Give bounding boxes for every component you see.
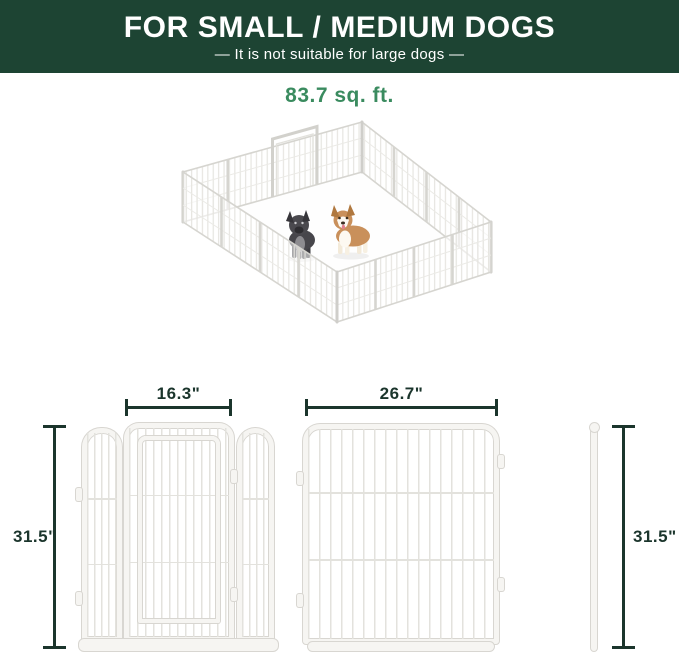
playpen-illustration [0,112,679,344]
left-height-label: 31.5" [13,527,57,547]
header-banner: FOR SMALL / MEDIUM DOGS — It is not suit… [0,0,679,73]
hinge-tab [297,594,303,607]
playpen-isometric-illustration [0,112,679,344]
regular-panel-base-bar [308,642,494,651]
narrow-panel-right [237,428,274,642]
panel-width-label: 26.7" [305,384,498,404]
hinge-tab [498,455,504,468]
hinge-tab [231,470,237,483]
door-width-dimension-line [125,406,232,409]
panel-width-dimension-line [305,406,498,409]
door-frame [138,436,220,623]
header-subtitle: — It is not suitable for large dogs — [215,46,465,63]
hinge-tab [76,592,82,605]
door-panel [124,423,234,642]
door-section-base-bar [79,639,278,651]
page-title: FOR SMALL / MEDIUM DOGS [124,11,556,44]
stake-height-label: 31.5" [633,527,677,547]
area-size-label: 83.7 sq. ft. [0,84,679,108]
hinge-tab [498,578,504,591]
narrow-panel-left [82,428,122,642]
regular-panel [303,424,499,644]
ground-stake [591,429,597,651]
door-width-label: 16.3" [125,384,232,404]
product-infographic: FOR SMALL / MEDIUM DOGS — It is not suit… [0,0,679,654]
right-height-dimension-line [622,425,625,649]
hinge-tab [297,472,303,485]
hinge-tab [76,488,82,501]
hinge-tab [231,588,237,601]
